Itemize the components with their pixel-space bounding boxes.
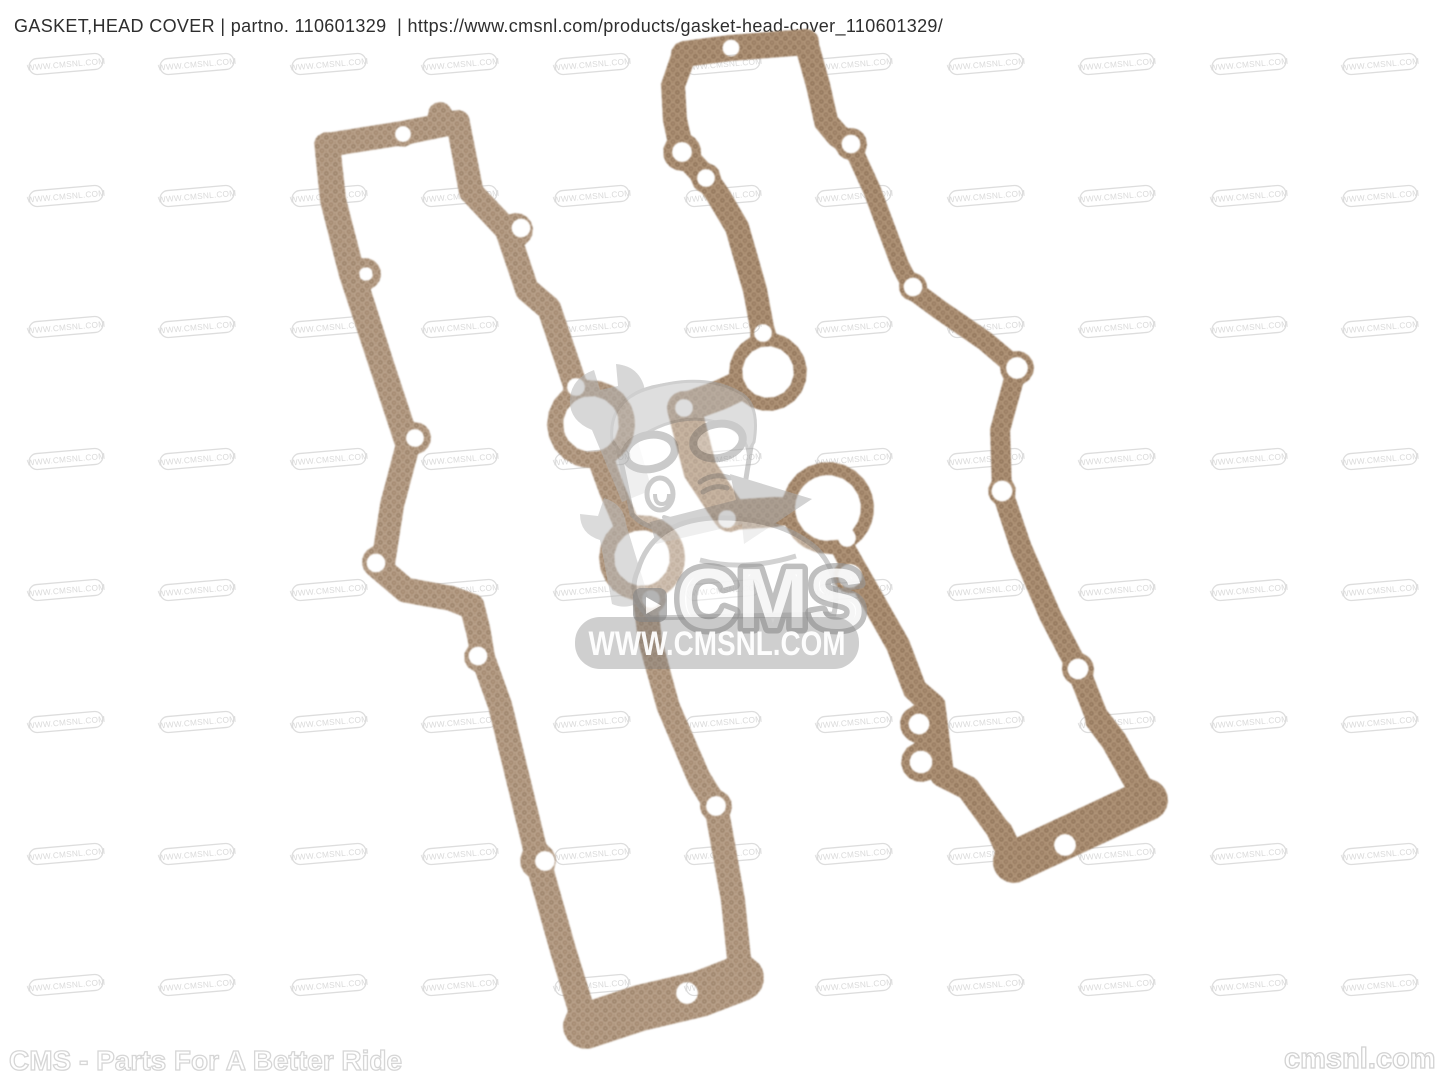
svg-text:WWW.CMSNL.COM: WWW.CMSNL.COM xyxy=(589,624,846,662)
